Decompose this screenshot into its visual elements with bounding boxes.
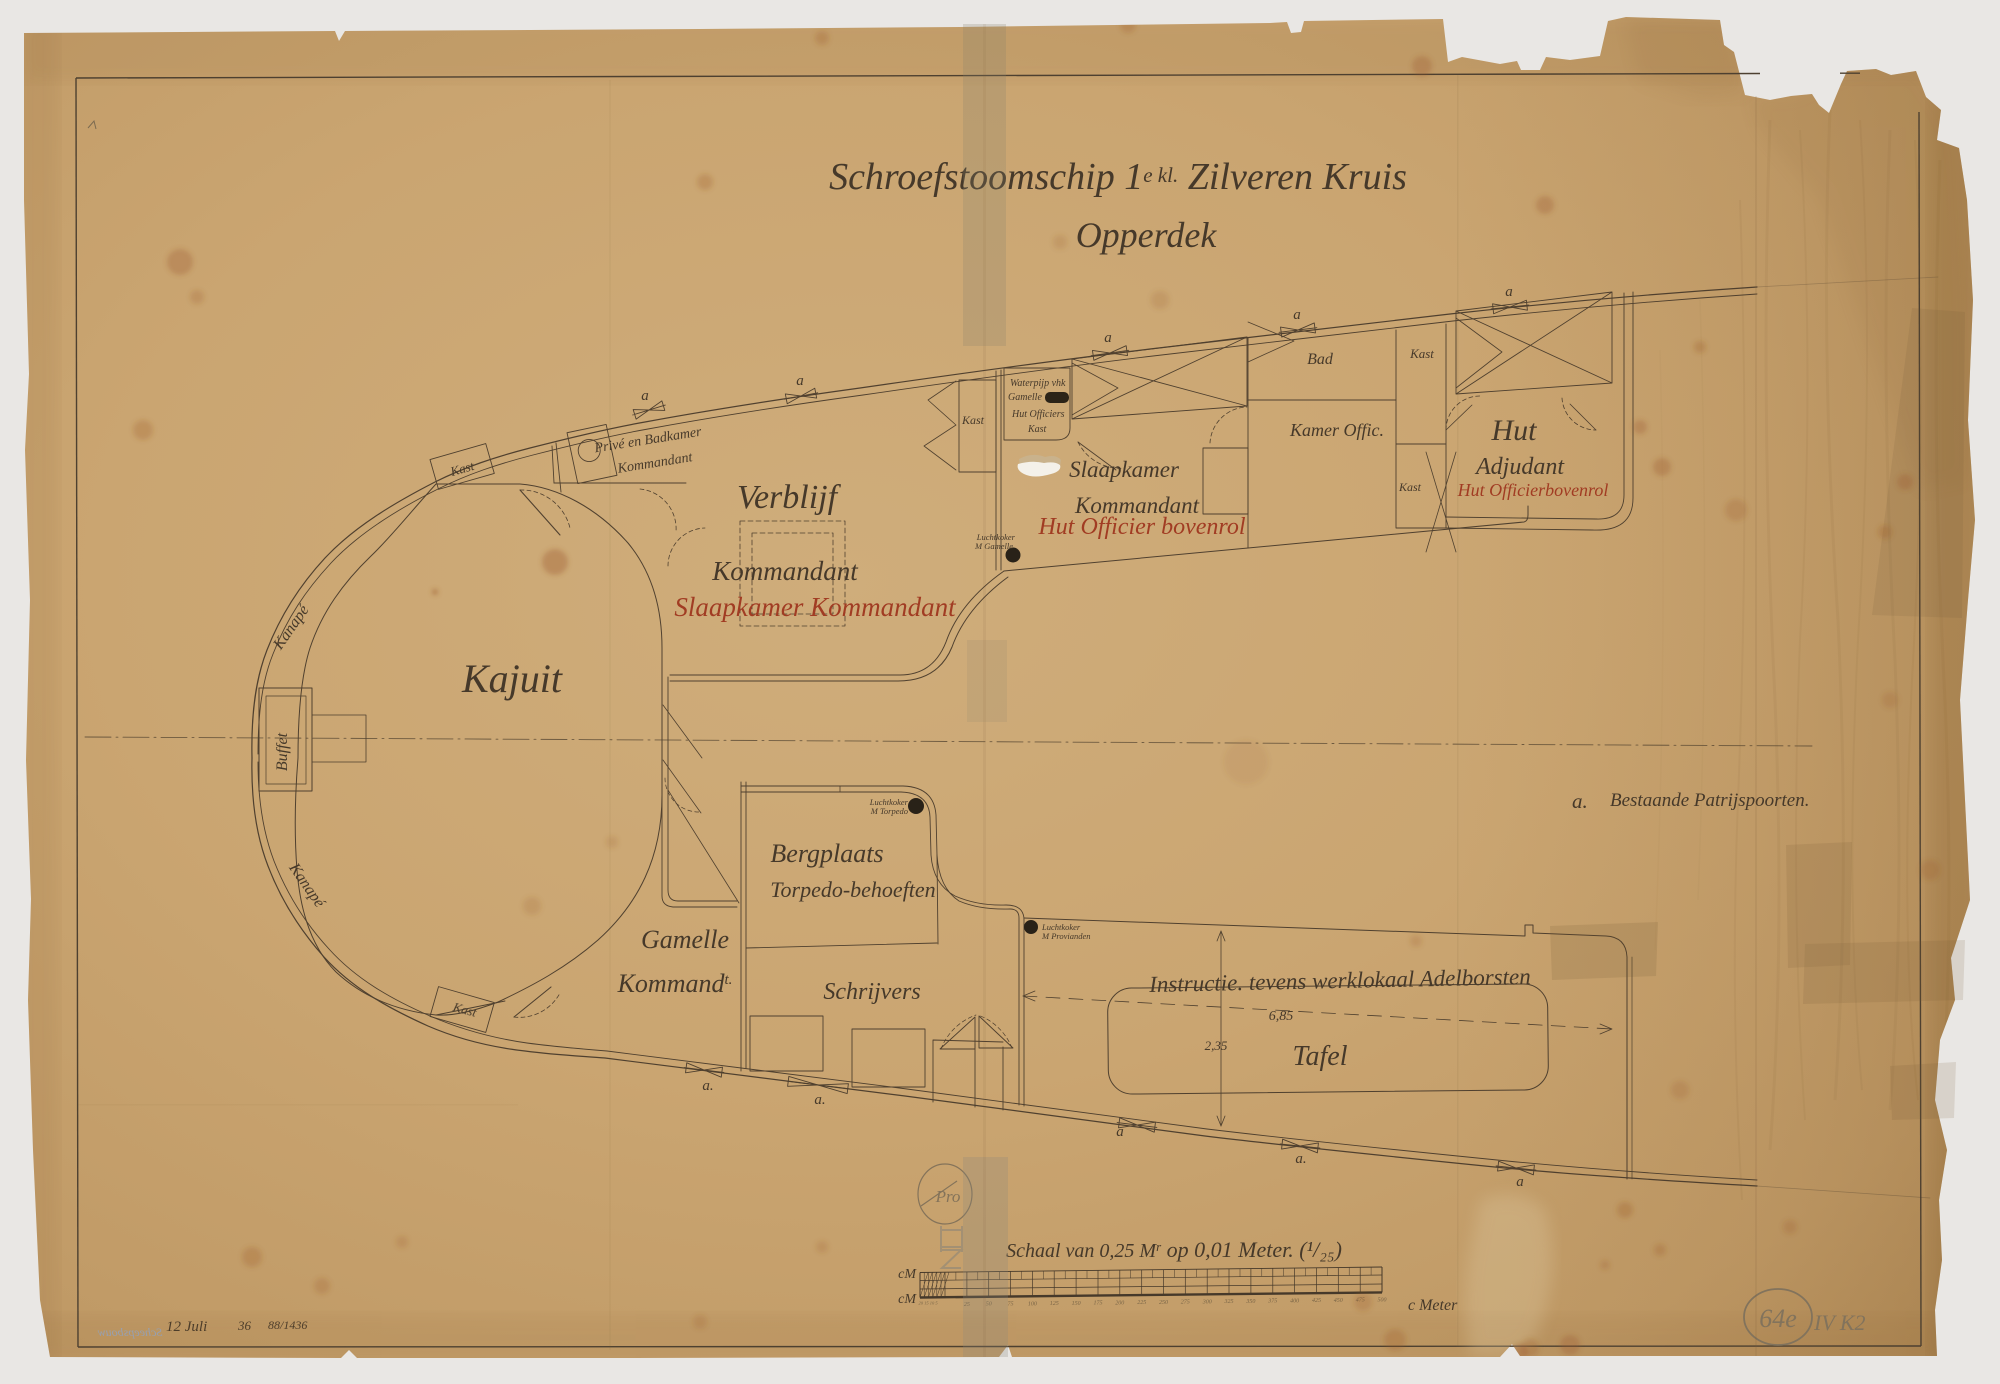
svg-text:Kast: Kast — [961, 413, 985, 427]
svg-text:425: 425 — [1312, 1297, 1321, 1304]
svg-text:6,85: 6,85 — [1269, 1009, 1294, 1024]
svg-text:75: 75 — [1008, 1302, 1014, 1308]
svg-text:a: a — [1116, 1124, 1124, 1140]
svg-text:a: a — [1104, 330, 1112, 346]
svg-text:Hut: Hut — [1491, 414, 1538, 447]
svg-text:36: 36 — [237, 1318, 252, 1333]
svg-text:150: 150 — [1072, 1301, 1081, 1307]
svg-text:Slaapkamer Kommandant: Slaapkamer Kommandant — [674, 592, 957, 622]
svg-text:Kast: Kast — [1027, 424, 1047, 435]
svg-text:a.: a. — [814, 1092, 825, 1108]
svg-text:cM: cM — [898, 1292, 917, 1307]
svg-text:225: 225 — [1137, 1300, 1146, 1306]
svg-text:Buffet: Buffet — [274, 732, 291, 771]
svg-text:300: 300 — [1202, 1299, 1212, 1305]
svg-text:M Torpedo: M Torpedo — [870, 806, 908, 816]
svg-text:Verblijf: Verblijf — [737, 479, 842, 516]
svg-text:Scheepsbouw: Scheepsbouw — [98, 1325, 163, 1339]
svg-text:Hut Officier bovenrol: Hut Officier bovenrol — [1037, 514, 1245, 540]
svg-text:a: a — [1516, 1174, 1524, 1190]
svg-text:a.: a. — [1295, 1151, 1306, 1167]
svg-text:Slaapkamer: Slaapkamer — [1069, 457, 1180, 482]
svg-text:450: 450 — [1334, 1297, 1343, 1304]
svg-text:Gamelle: Gamelle — [641, 925, 729, 954]
svg-text:Opperdek: Opperdek — [1076, 215, 1218, 255]
svg-text:175: 175 — [1094, 1301, 1103, 1307]
svg-text:400: 400 — [1290, 1297, 1299, 1304]
svg-text:Kamer Offic.: Kamer Offic. — [1289, 420, 1384, 440]
svg-text:Kommandt.: Kommandt. — [617, 969, 733, 998]
svg-text:350: 350 — [1245, 1299, 1255, 1305]
svg-text:Schroefstoomschip 1e kl. Zilve: Schroefstoomschip 1e kl. Zilveren Kruis — [829, 156, 1407, 198]
svg-text:64e: 64e — [1759, 1304, 1797, 1333]
svg-text:a.: a. — [1572, 789, 1588, 813]
svg-text:a.: a. — [702, 1078, 713, 1094]
svg-text:Schrijvers: Schrijvers — [823, 979, 920, 1005]
svg-text:275: 275 — [1181, 1300, 1190, 1306]
svg-text:20 15 10 5: 20 15 10 5 — [918, 1300, 938, 1305]
svg-text:12 Juli: 12 Juli — [166, 1319, 207, 1335]
svg-text:Torpedo-behoeften: Torpedo-behoeften — [770, 877, 935, 902]
svg-text:325: 325 — [1224, 1299, 1234, 1305]
svg-text:Hut Officiers: Hut Officiers — [1011, 409, 1065, 420]
svg-text:a: a — [1505, 284, 1513, 300]
svg-text:Pro: Pro — [935, 1187, 961, 1206]
svg-text:Gamelle: Gamelle — [1008, 392, 1042, 403]
svg-text:a: a — [641, 388, 649, 404]
svg-text:Bad: Bad — [1307, 351, 1334, 368]
svg-text:c Meter: c Meter — [1408, 1297, 1458, 1314]
svg-text:200: 200 — [1115, 1300, 1124, 1306]
svg-text:M Provianden: M Provianden — [1041, 931, 1091, 941]
svg-text:100: 100 — [1028, 1301, 1037, 1307]
svg-text:cM: cM — [898, 1267, 917, 1282]
svg-text:2,35: 2,35 — [1205, 1038, 1228, 1053]
svg-text:Tafel: Tafel — [1293, 1041, 1348, 1072]
svg-text:Kast: Kast — [1409, 346, 1434, 361]
svg-text:Bergplaats: Bergplaats — [770, 839, 883, 868]
svg-text:Kajuit: Kajuit — [461, 656, 563, 701]
svg-text:125: 125 — [1050, 1301, 1059, 1307]
svg-text:IV K2: IV K2 — [1813, 1310, 1866, 1335]
svg-text:Bestaande Patrijspoorten.: Bestaande Patrijspoorten. — [1610, 790, 1809, 811]
svg-text:250: 250 — [1159, 1300, 1168, 1306]
svg-text:Adjudant: Adjudant — [1474, 454, 1565, 480]
svg-text:M Gamelle: M Gamelle — [974, 541, 1013, 551]
svg-text:500: 500 — [1378, 1297, 1387, 1303]
svg-text:a: a — [1293, 307, 1301, 323]
svg-text:Hut Officierbovenrol: Hut Officierbovenrol — [1457, 480, 1609, 500]
svg-text:Waterpijp vhk: Waterpijp vhk — [1010, 378, 1066, 389]
svg-text:a: a — [796, 373, 804, 389]
svg-text:Kommandant: Kommandant — [711, 556, 859, 586]
svg-text:Kast: Kast — [1398, 480, 1422, 494]
svg-text:88/1436: 88/1436 — [268, 1318, 307, 1332]
svg-text:Schaal van 0,25 Mr op 0,01 Met: Schaal van 0,25 Mr op 0,01 Meter. (¹/₂₅) — [1006, 1237, 1342, 1262]
svg-text:375: 375 — [1267, 1299, 1277, 1305]
